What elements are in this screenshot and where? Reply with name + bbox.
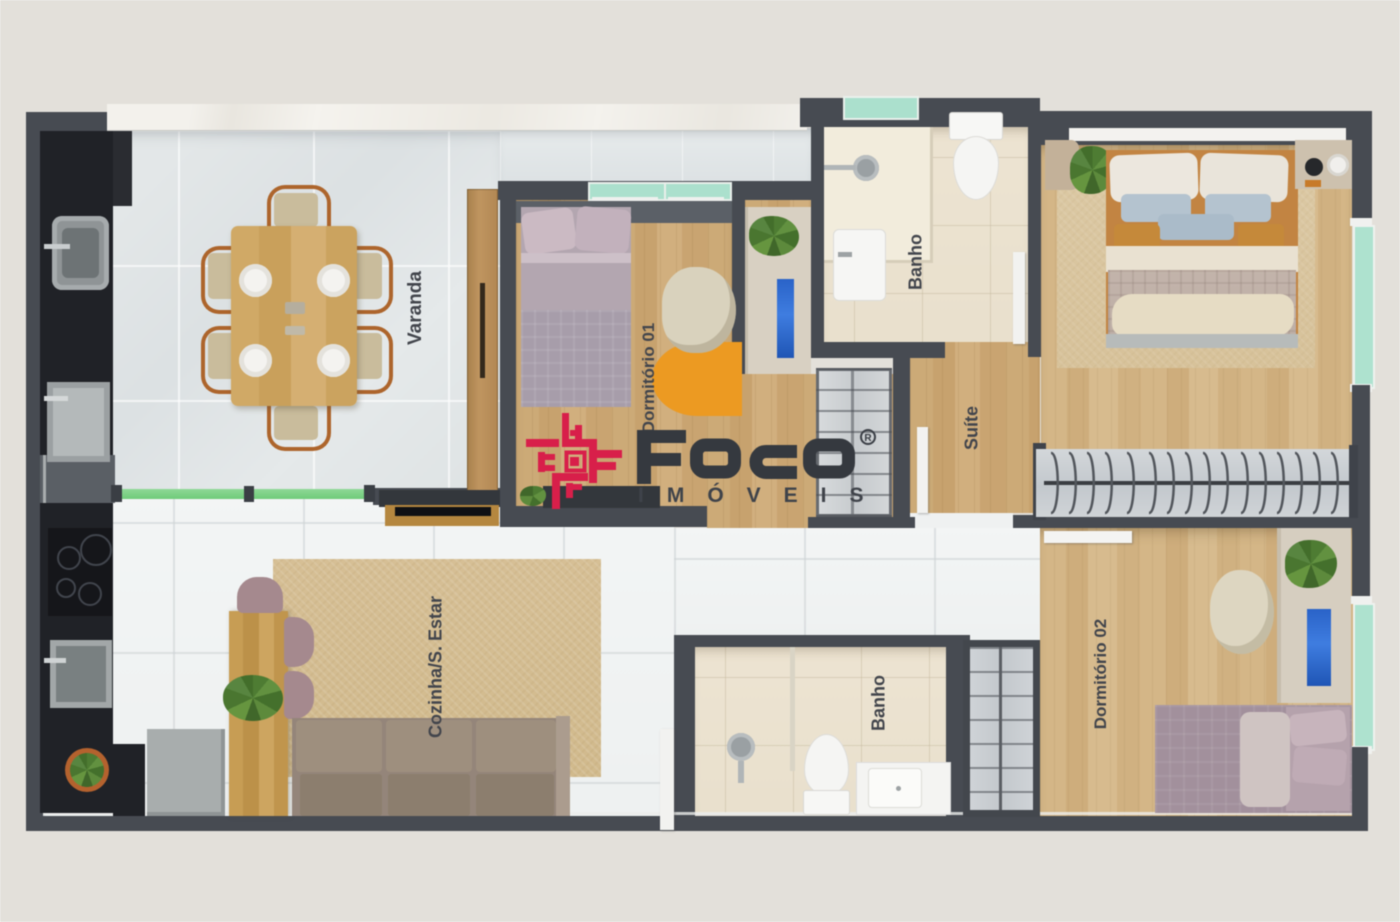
svg-text:R: R xyxy=(864,433,872,444)
svg-text:IMÓVEIS: IMÓVEIS xyxy=(638,483,880,507)
